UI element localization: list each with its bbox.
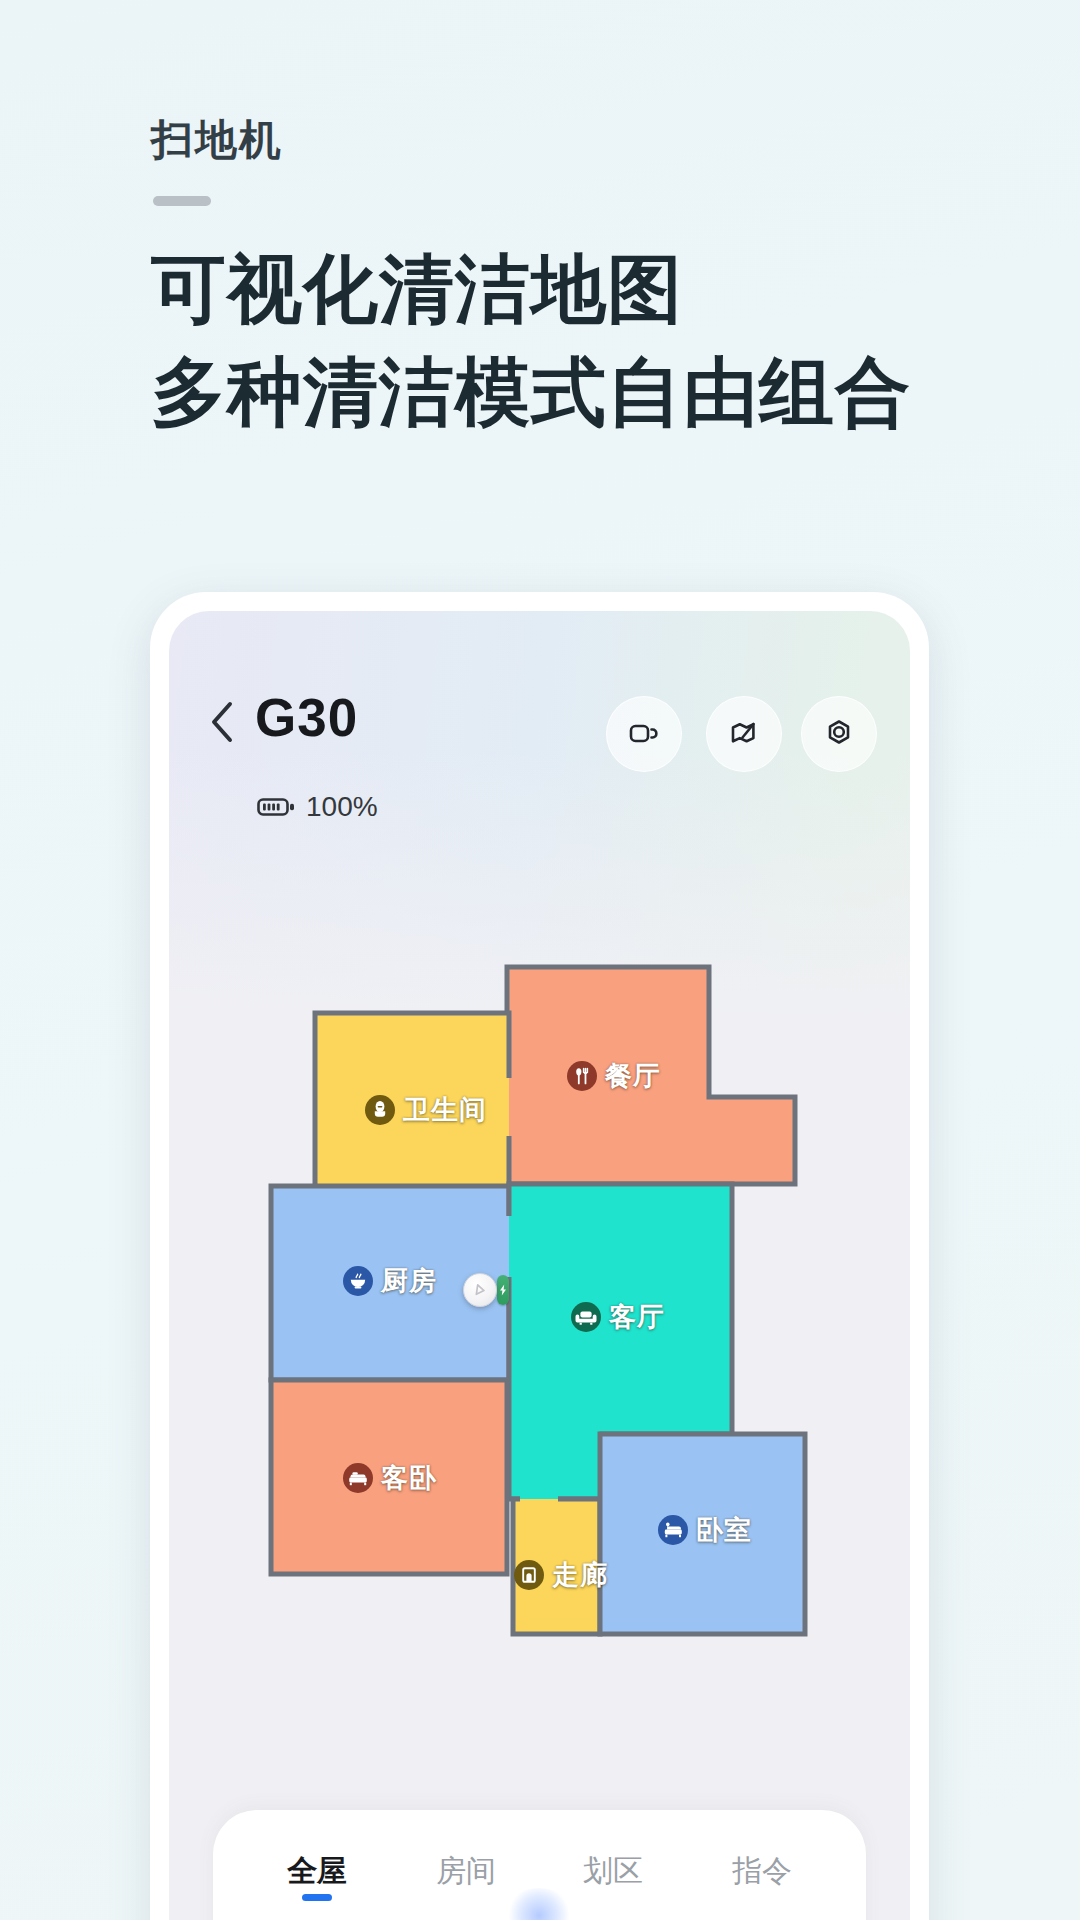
- charging-bolt-icon: [499, 1284, 507, 1296]
- battery-icon: [257, 796, 297, 818]
- page: 扫地机 可视化清洁地图 多种清洁模式自由组合 G30 100%: [0, 0, 1080, 1920]
- active-tab-indicator: [302, 1894, 332, 1901]
- room-label-kitchen: 厨房: [343, 1263, 437, 1299]
- tab-whole-house[interactable]: 全屋: [287, 1851, 347, 1892]
- room-label-corridor: 走廊: [514, 1557, 608, 1593]
- tab-command[interactable]: 指令: [732, 1851, 792, 1892]
- tab-zone[interactable]: 划区: [583, 1851, 643, 1892]
- map-edit-button[interactable]: [706, 696, 782, 772]
- bed-icon: [343, 1463, 373, 1493]
- robot-heading-icon: [471, 1281, 489, 1299]
- bowl-icon: [343, 1266, 373, 1296]
- room-name: 卫生间: [403, 1092, 487, 1128]
- page-title: 扫地机: [151, 112, 283, 168]
- page-heading: 可视化清洁地图 多种清洁模式自由组合: [151, 238, 911, 444]
- title-divider: [153, 196, 211, 206]
- app-preview-card: G30 100%: [150, 592, 929, 1920]
- robot-vacuum[interactable]: [463, 1273, 497, 1307]
- settings-button[interactable]: [801, 696, 877, 772]
- tab-room[interactable]: 房间: [436, 1851, 496, 1892]
- cutlery-icon: [567, 1061, 597, 1091]
- door-gap-dining: [509, 1078, 514, 1136]
- room-label-bedroom: 卧室: [658, 1512, 752, 1548]
- room-name: 餐厅: [605, 1058, 661, 1094]
- map-edit-icon: [726, 716, 762, 752]
- room-label-dining: 餐厅: [567, 1058, 661, 1094]
- back-chevron-icon[interactable]: [209, 699, 235, 745]
- app-screen: G30 100%: [169, 611, 910, 1920]
- settings-icon: [821, 716, 857, 752]
- room-label-bathroom: 卫生间: [365, 1092, 487, 1128]
- heading-line-2: 多种清洁模式自由组合: [151, 341, 911, 444]
- room-name: 客卧: [381, 1460, 437, 1496]
- battery-percent: 100%: [306, 791, 378, 823]
- room-label-living: 客厅: [571, 1299, 665, 1335]
- room-name: 走廊: [552, 1557, 608, 1593]
- video-camera-button[interactable]: [606, 696, 682, 772]
- door-gap-bathroom: [504, 1078, 509, 1136]
- door-gap-corridor: [520, 1499, 558, 1504]
- room-name: 卧室: [696, 1512, 752, 1548]
- sofa-icon: [571, 1302, 601, 1332]
- video-camera-icon: [625, 716, 663, 752]
- battery-status: 100%: [257, 791, 378, 823]
- door-gap-kitchen: [504, 1216, 509, 1277]
- charging-dock: [497, 1275, 509, 1305]
- bottom-sheet: 全屋 房间 划区 指令: [213, 1810, 866, 1920]
- room-name: 厨房: [381, 1263, 437, 1299]
- heading-line-1: 可视化清洁地图: [151, 238, 911, 341]
- door-icon: [514, 1560, 544, 1590]
- device-name: G30: [255, 687, 358, 748]
- start-button-glow: [507, 1888, 571, 1920]
- room-name: 客厅: [609, 1299, 665, 1335]
- bed-lamp-icon: [658, 1515, 688, 1545]
- door-gap-living-corridor: [520, 1494, 558, 1499]
- door-gap-living: [509, 1216, 514, 1277]
- room-label-guest-bedroom: 客卧: [343, 1460, 437, 1496]
- toilet-icon: [365, 1095, 395, 1125]
